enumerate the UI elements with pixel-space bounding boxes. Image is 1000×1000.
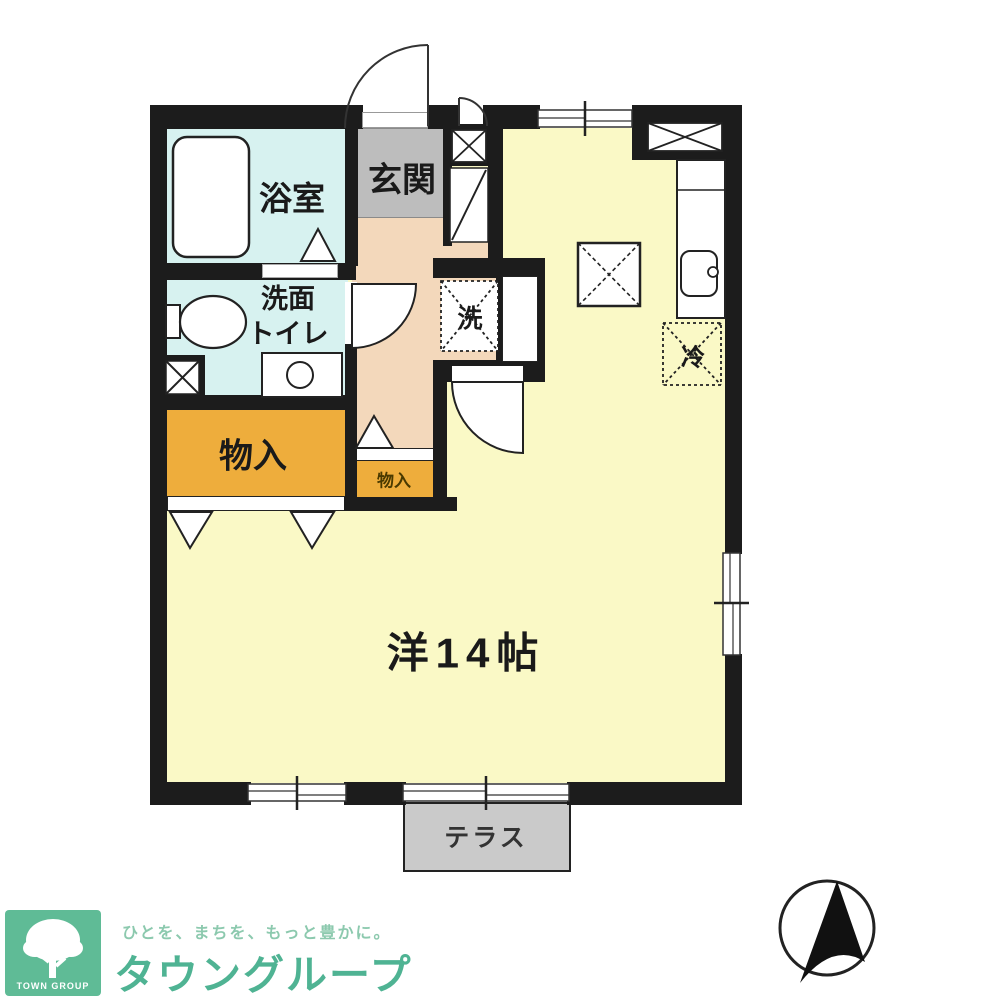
- wall-segment: [725, 158, 742, 554]
- hallway-floor-lower: [352, 380, 433, 450]
- bathroom-label: 浴室: [259, 172, 325, 220]
- washer-label: 洗: [457, 299, 482, 335]
- washroom-label-line2: トイレ: [248, 317, 329, 352]
- brand-tagline: ひとを、まちを、もっと豊かに。: [122, 919, 392, 943]
- wall-segment: [567, 782, 742, 805]
- bathroom-door-opening: [262, 264, 338, 278]
- town-group-logo: TOWN GROUP: [5, 910, 101, 996]
- fridge-label: 冷: [681, 338, 705, 373]
- storage-small-label: 物入: [377, 467, 411, 492]
- storage-large-label: 物入: [219, 429, 287, 478]
- entrance-threshold: [362, 112, 428, 128]
- floor-plan: 浴室 玄関 洗面 トイレ 物入 物入 洗 冷 洋14帖 テラス TOWN GRO…: [0, 0, 1000, 1000]
- storage-large-door-track: [167, 496, 345, 511]
- hallway-floor-upper: [352, 215, 498, 380]
- storage-small-door-track: [350, 448, 437, 461]
- terrace-label: テラス: [444, 818, 528, 854]
- washroom-door-opening: [345, 282, 357, 344]
- main-room-label: 洋14帖: [387, 620, 546, 681]
- wall-segment: [150, 782, 251, 805]
- brand-name: タウングループ: [114, 941, 413, 1000]
- wall-segment: [488, 126, 503, 278]
- wall-segment: [632, 105, 742, 160]
- wall-segment: [160, 355, 205, 400]
- wall-segment: [345, 126, 358, 266]
- wall-segment: [150, 105, 363, 129]
- wall-segment: [433, 382, 447, 511]
- entrance-label: 玄関: [368, 153, 436, 202]
- wall-niche: [502, 276, 538, 362]
- north-arrow-icon: [780, 881, 874, 983]
- wall-segment: [344, 782, 406, 805]
- wall-segment: [150, 105, 167, 805]
- wall-segment: [446, 124, 490, 166]
- wall-segment: [344, 497, 457, 511]
- washroom-label: 洗面 トイレ: [248, 282, 329, 352]
- wall-segment: [433, 258, 503, 278]
- mainroom-door-opening: [452, 366, 523, 382]
- wall-segment: [345, 344, 357, 511]
- washroom-label-line1: 洗面: [248, 282, 329, 317]
- logo-mark-text: TOWN GROUP: [17, 981, 90, 991]
